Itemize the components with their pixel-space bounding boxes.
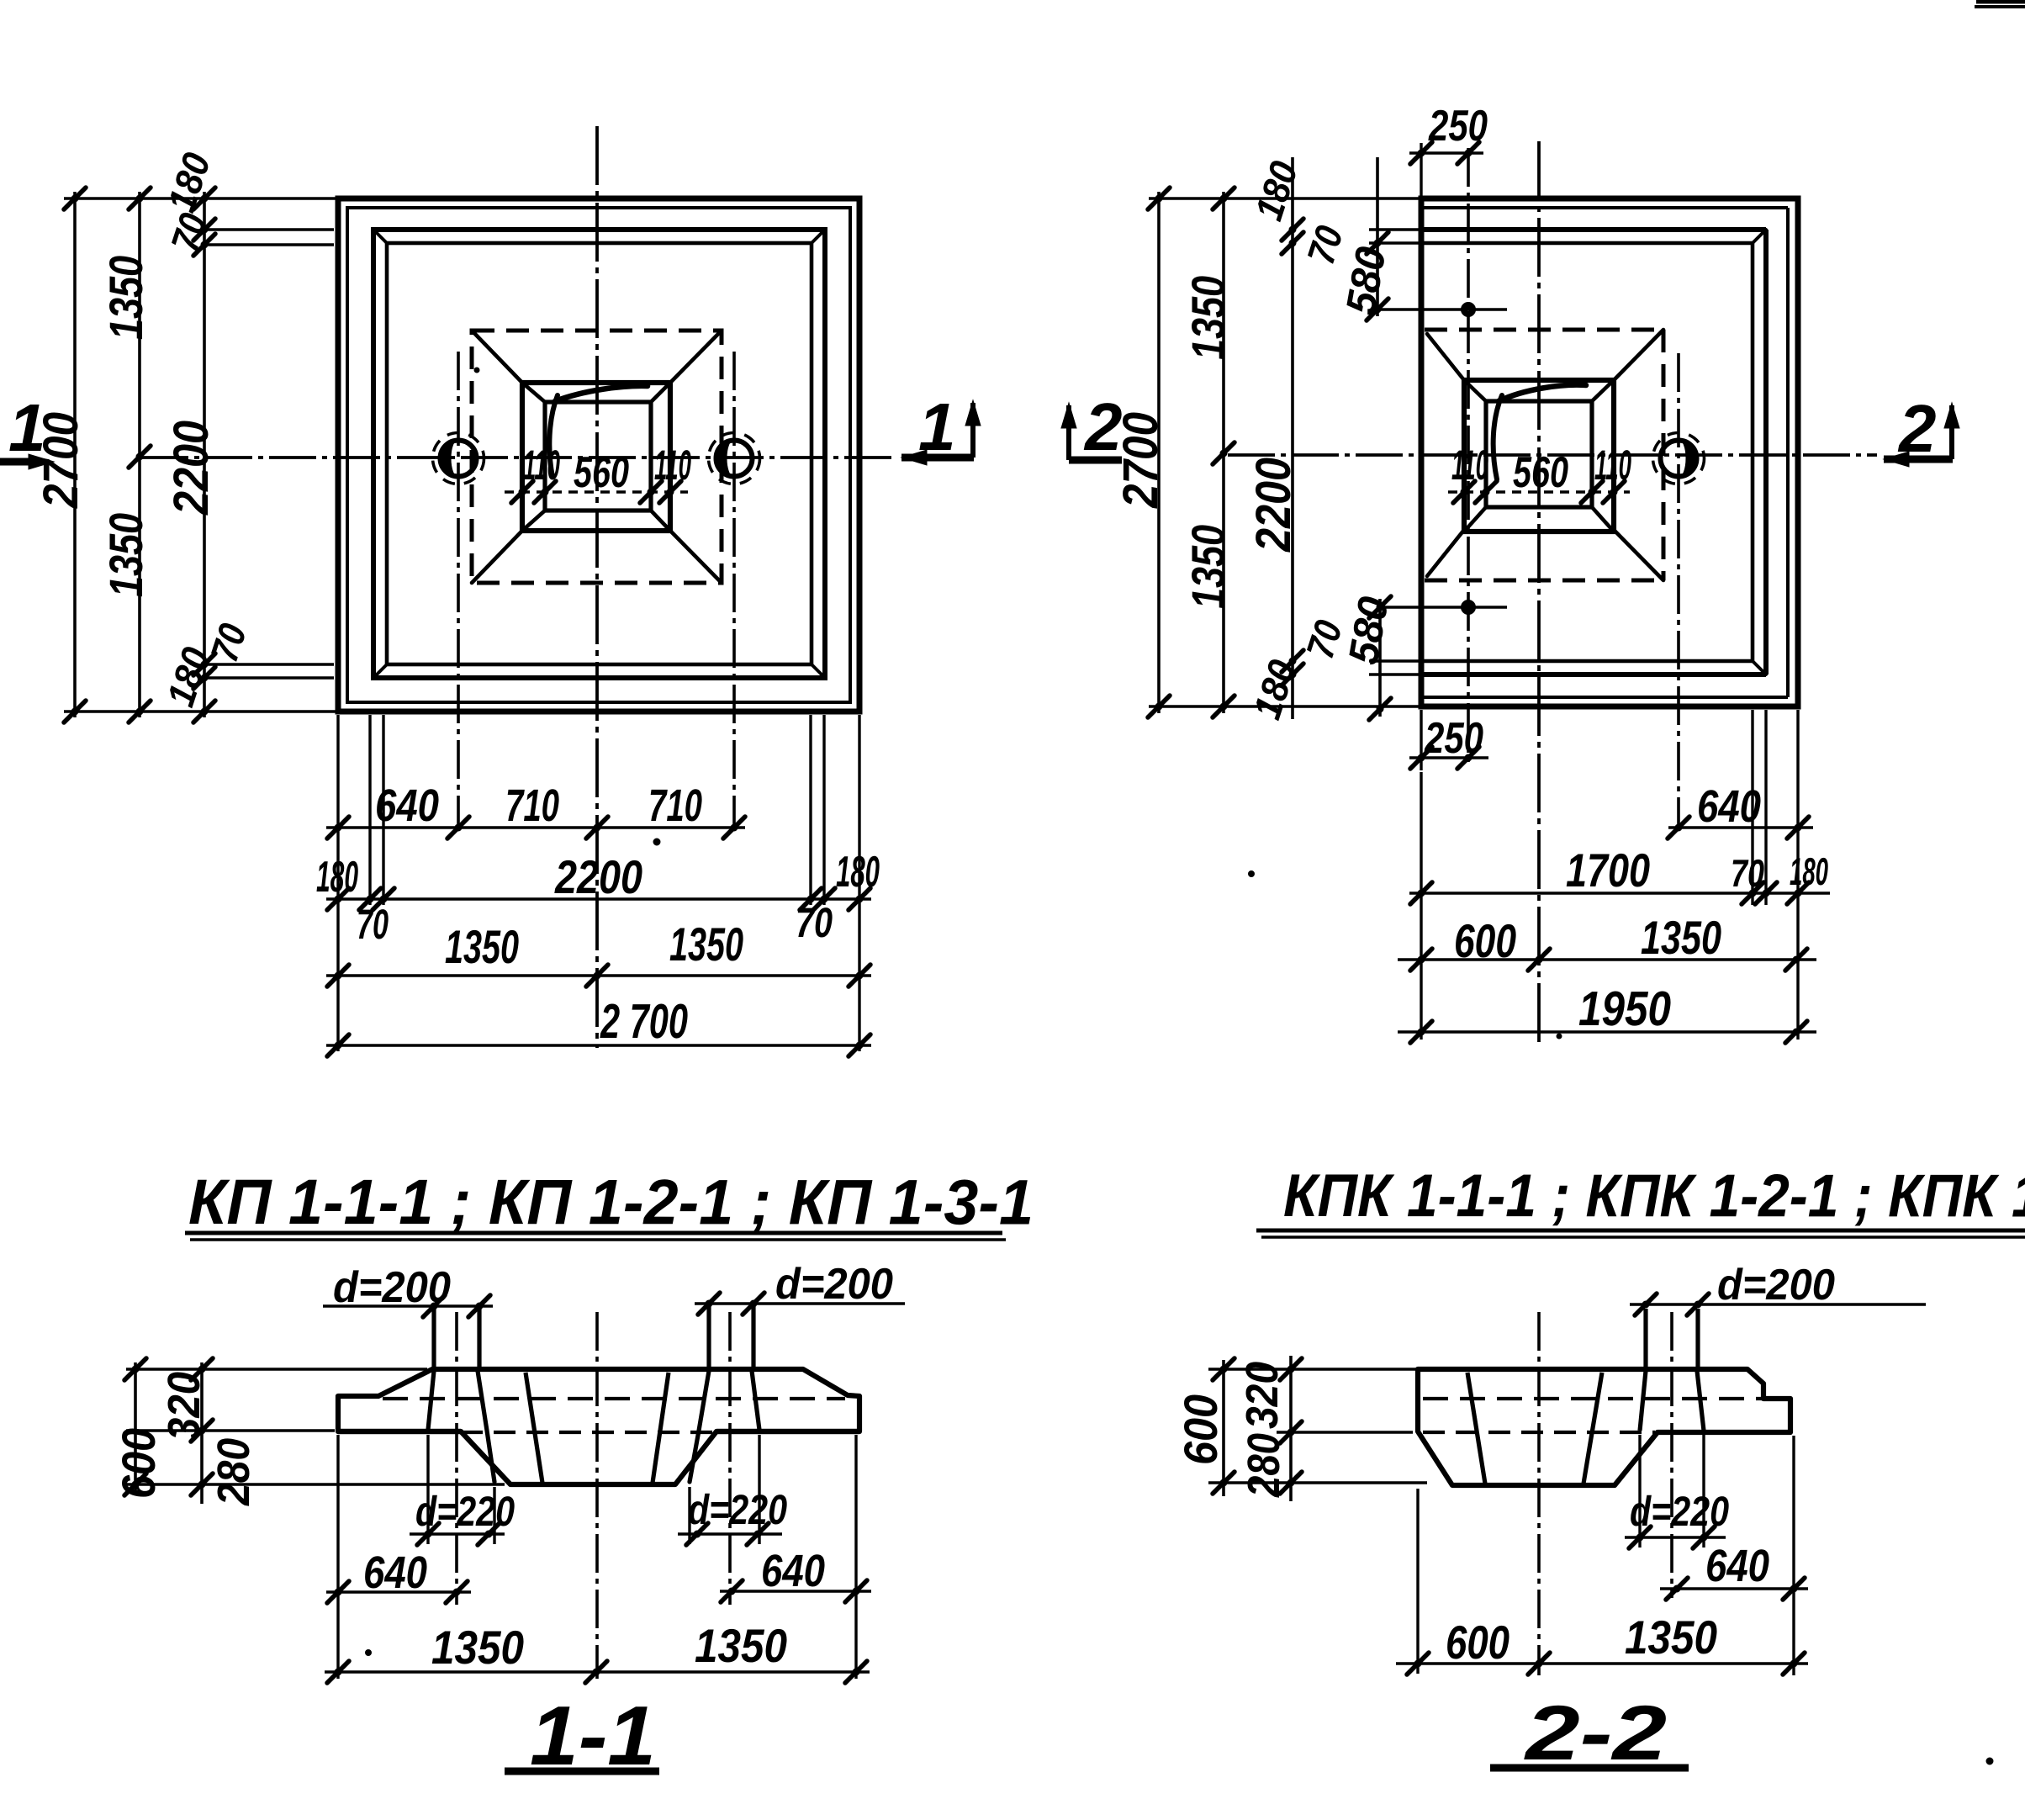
svg-text:1350: 1350: [445, 920, 519, 973]
svg-text:2200: 2200: [164, 421, 219, 516]
svg-text:КП 1-1-1 ; КП 1-2-1 ; КП 1-3-1: КП 1-1-1 ; КП 1-2-1 ; КП 1-3-1: [188, 1167, 1034, 1239]
svg-text:1350: 1350: [1182, 276, 1235, 360]
svg-text:320: 320: [159, 1372, 209, 1441]
svg-text:1350: 1350: [99, 513, 152, 597]
svg-text:110: 110: [654, 442, 691, 489]
svg-text:d=220: d=220: [1630, 1488, 1729, 1535]
svg-text:180: 180: [836, 848, 880, 897]
svg-text:1350: 1350: [431, 1621, 524, 1674]
svg-text:600: 600: [1454, 914, 1516, 967]
svg-text:2700: 2700: [1113, 412, 1168, 509]
svg-text:1350: 1350: [695, 1619, 787, 1672]
svg-text:110: 110: [1594, 442, 1631, 489]
svg-text:2200: 2200: [554, 850, 642, 903]
svg-text:70: 70: [357, 901, 389, 948]
svg-text:d=220: d=220: [688, 1486, 787, 1533]
svg-text:110: 110: [1451, 442, 1488, 489]
svg-text:1700: 1700: [1566, 844, 1650, 897]
svg-text:600: 600: [1174, 1394, 1227, 1465]
svg-text:640: 640: [375, 780, 439, 831]
svg-text:1: 1: [918, 389, 956, 464]
svg-text:280: 280: [209, 1438, 259, 1506]
svg-text:1350: 1350: [1625, 1611, 1717, 1664]
svg-text:110: 110: [523, 442, 560, 489]
svg-text:560: 560: [574, 448, 629, 497]
svg-text:640: 640: [761, 1546, 825, 1596]
svg-text:600: 600: [1446, 1616, 1509, 1669]
svg-text:180: 180: [1790, 849, 1828, 893]
svg-text:70: 70: [1731, 851, 1764, 895]
svg-text:250: 250: [1428, 102, 1488, 151]
svg-text:1350: 1350: [1182, 525, 1235, 609]
svg-text:250: 250: [1424, 714, 1483, 763]
svg-text:1350: 1350: [669, 918, 743, 971]
svg-text:КПК 1-1-1 ; КПК 1-2-1 ; КПК 1-: КПК 1-1-1 ; КПК 1-2-1 ; КПК 1-3-1: [1283, 1162, 2025, 1230]
svg-text:320: 320: [1237, 1362, 1287, 1429]
svg-text:280: 280: [1239, 1433, 1289, 1498]
svg-text:d=220: d=220: [415, 1488, 515, 1535]
svg-text:1350: 1350: [99, 256, 152, 340]
svg-text:2200: 2200: [1246, 458, 1301, 553]
svg-text:2: 2: [1897, 391, 1937, 466]
svg-text:710: 710: [505, 780, 559, 831]
svg-text:1950: 1950: [1578, 981, 1671, 1036]
svg-text:d=200: d=200: [775, 1260, 893, 1309]
svg-text:640: 640: [363, 1548, 427, 1598]
svg-text:1350: 1350: [1641, 911, 1721, 964]
svg-text:180: 180: [316, 853, 358, 902]
svg-text:2-2: 2-2: [1523, 1690, 1667, 1776]
svg-text:640: 640: [1697, 781, 1761, 832]
svg-text:70: 70: [796, 899, 833, 946]
svg-text:600: 600: [112, 1428, 165, 1499]
svg-text:640: 640: [1705, 1541, 1769, 1591]
svg-text:d=200: d=200: [333, 1263, 451, 1312]
svg-text:2 700: 2 700: [600, 994, 688, 1049]
svg-text:2700: 2700: [34, 412, 88, 509]
svg-text:710: 710: [648, 780, 702, 831]
svg-text:d=200: d=200: [1717, 1261, 1835, 1309]
